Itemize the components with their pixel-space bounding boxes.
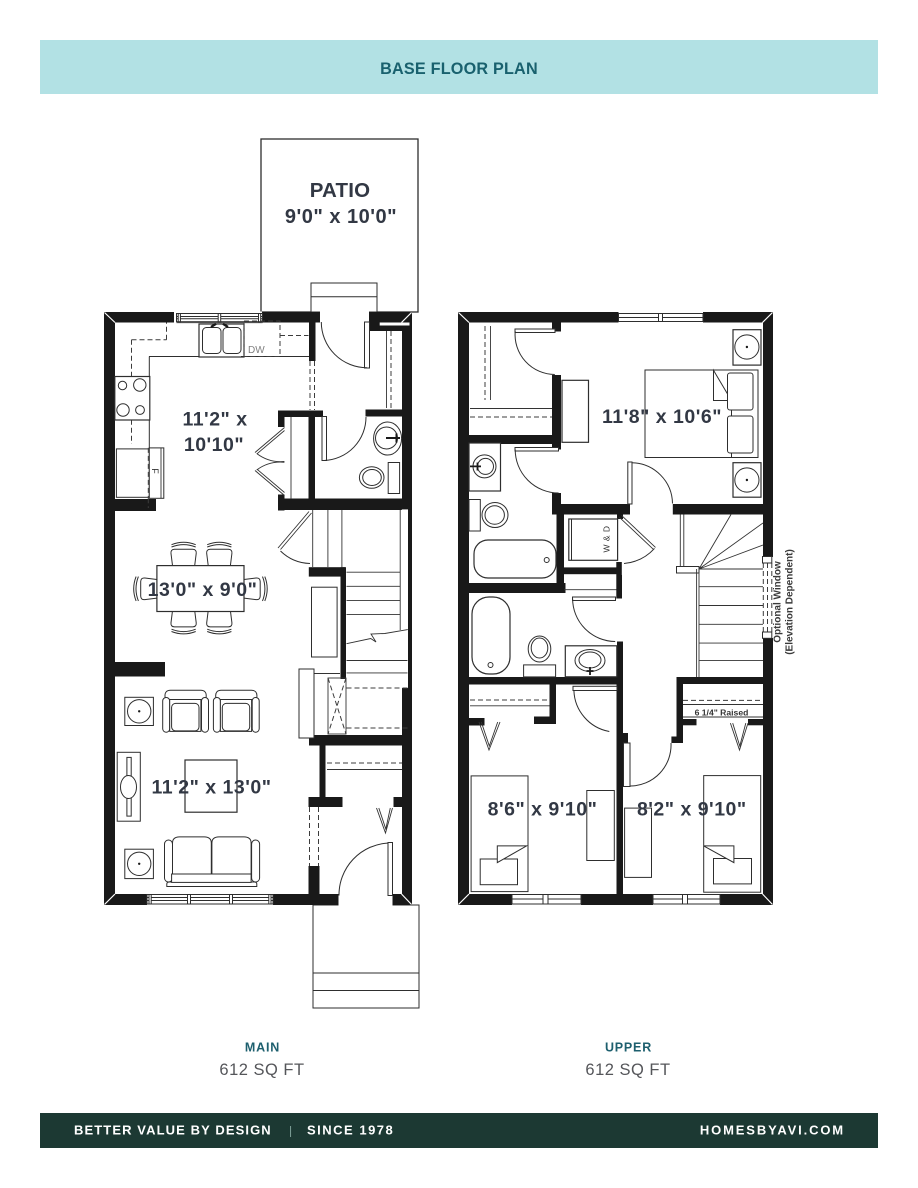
svg-text:6 1/4" Raised: 6 1/4" Raised xyxy=(695,708,749,718)
svg-text:9'0" x 10'0": 9'0" x 10'0" xyxy=(285,206,397,228)
svg-text:11'2" x: 11'2" x xyxy=(182,408,247,430)
svg-text:(Elevation Dependent): (Elevation Dependent) xyxy=(785,549,796,655)
svg-text:|: | xyxy=(289,1124,292,1138)
svg-text:MAIN: MAIN xyxy=(245,1041,280,1055)
svg-text:PATIO: PATIO xyxy=(310,179,371,202)
svg-text:8'2" x 9'10": 8'2" x 9'10" xyxy=(637,799,747,821)
svg-text:13'0" x 9'0": 13'0" x 9'0" xyxy=(148,579,258,601)
svg-text:W & D: W & D xyxy=(602,525,612,552)
svg-text:612 SQ FT: 612 SQ FT xyxy=(585,1061,670,1079)
svg-text:11'2" x 13'0": 11'2" x 13'0" xyxy=(152,777,272,799)
svg-text:BASE FLOOR PLAN: BASE FLOOR PLAN xyxy=(380,60,538,78)
svg-text:612 SQ FT: 612 SQ FT xyxy=(219,1061,304,1079)
svg-text:F: F xyxy=(150,468,160,474)
svg-text:BETTER VALUE BY DESIGN: BETTER VALUE BY DESIGN xyxy=(74,1123,272,1138)
svg-text:SINCE 1978: SINCE 1978 xyxy=(307,1123,394,1138)
svg-text:Optional Window: Optional Window xyxy=(773,561,784,643)
svg-text:DW: DW xyxy=(248,345,265,356)
svg-text:HOMESBYAVI.COM: HOMESBYAVI.COM xyxy=(700,1123,845,1138)
svg-text:UPPER: UPPER xyxy=(605,1041,652,1055)
svg-text:8'6" x 9'10": 8'6" x 9'10" xyxy=(488,799,598,821)
svg-text:10'10": 10'10" xyxy=(184,434,244,456)
svg-text:11'8" x 10'6": 11'8" x 10'6" xyxy=(602,406,722,428)
